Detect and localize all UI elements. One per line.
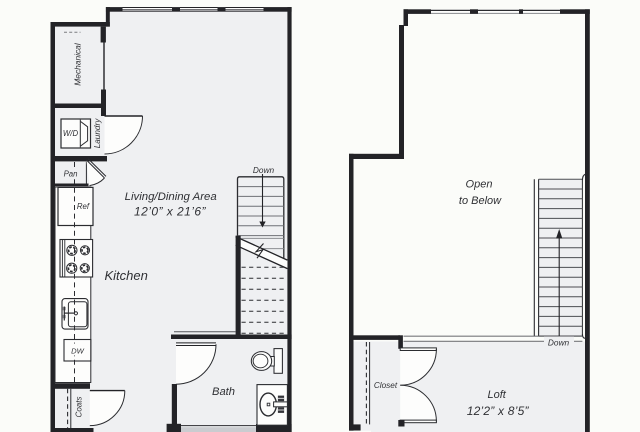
svg-text:to Below: to Below [459,195,502,207]
svg-text:Bath: Bath [212,386,235,398]
svg-text:Open: Open [466,179,493,191]
svg-text:12’2” x 8’5”: 12’2” x 8’5” [467,404,530,418]
svg-text:Living/Dining Area: Living/Dining Area [125,191,217,203]
svg-text:Loft: Loft [488,389,507,401]
svg-text:Mechanical: Mechanical [73,42,83,86]
svg-text:Ref: Ref [77,202,90,211]
svg-text:Coats: Coats [75,397,84,418]
svg-text:Kitchen: Kitchen [105,268,148,283]
svg-text:W/D: W/D [63,129,79,138]
svg-text:Pan: Pan [64,170,78,179]
svg-text:Down: Down [548,337,570,347]
svg-text:Laundry: Laundry [93,118,102,148]
svg-text:Down: Down [253,165,275,175]
svg-text:12’0” x 21’6”: 12’0” x 21’6” [134,205,206,219]
svg-text:DW: DW [71,347,84,356]
svg-text:Closet: Closet [374,381,398,390]
